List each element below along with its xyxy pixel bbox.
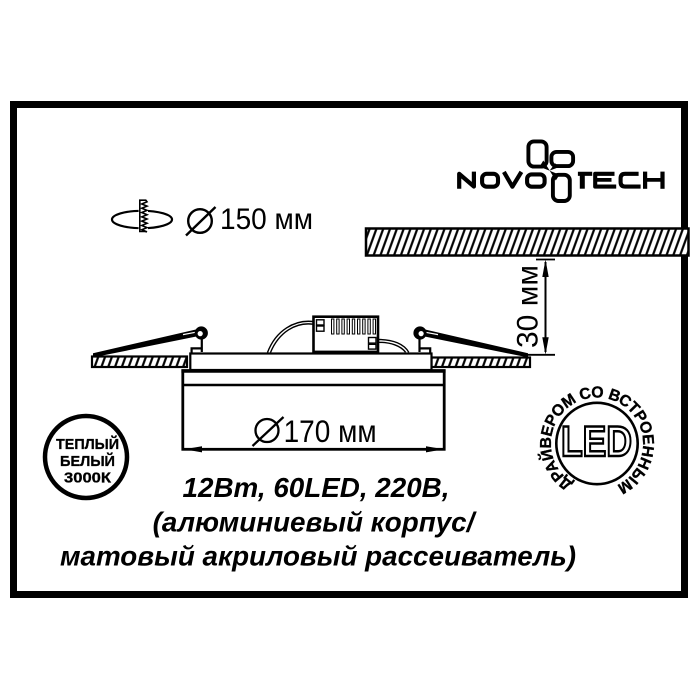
svg-text:150 мм: 150 мм bbox=[220, 203, 313, 236]
svg-text:3000К: 3000К bbox=[64, 470, 112, 487]
svg-text:30 мм: 30 мм bbox=[512, 265, 545, 348]
svg-text:матовый акриловый рассеиватель: матовый акриловый рассеиватель) bbox=[60, 541, 576, 572]
svg-text:(алюминиевый корпус/: (алюминиевый корпус/ bbox=[153, 507, 478, 538]
svg-text:LED: LED bbox=[561, 418, 632, 466]
svg-text:12Вт, 60LED, 220В,: 12Вт, 60LED, 220В, bbox=[183, 472, 450, 503]
svg-text:170 мм: 170 мм bbox=[284, 413, 377, 449]
svg-text:ТЕПЛЫЙ: ТЕПЛЫЙ bbox=[56, 435, 119, 453]
svg-text:БЕЛЫЙ: БЕЛЫЙ bbox=[60, 452, 115, 470]
